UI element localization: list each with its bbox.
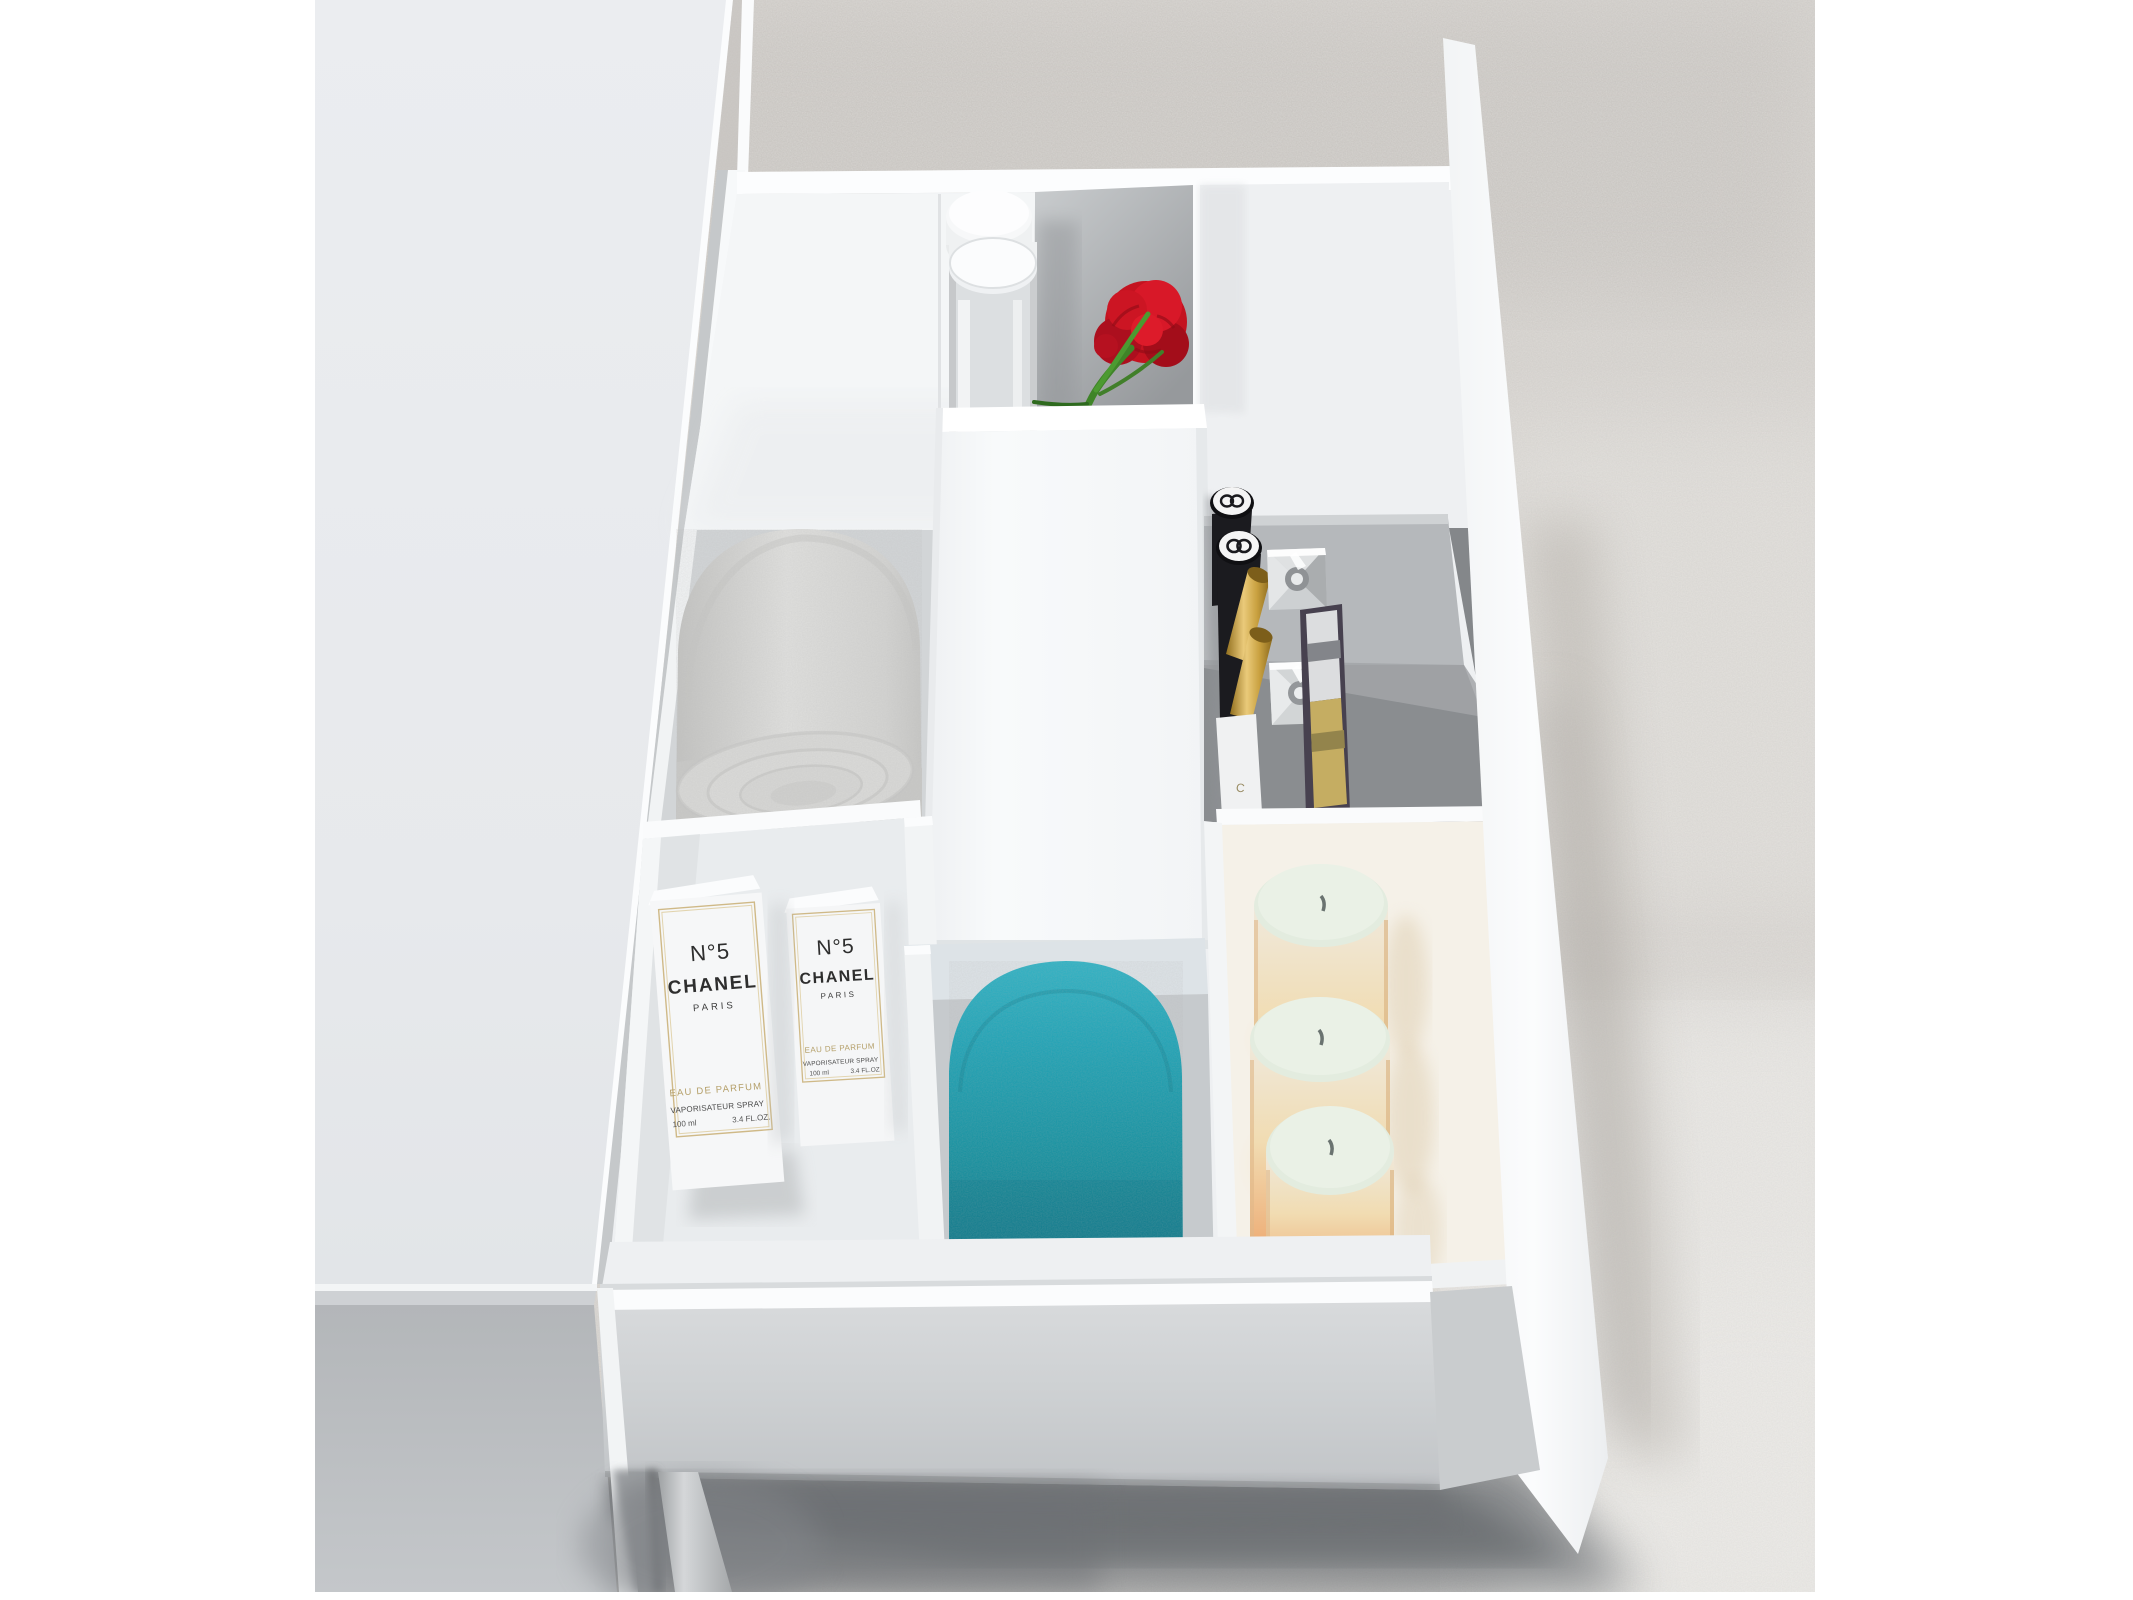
svg-text:C: C (1235, 781, 1245, 796)
svg-text:100 ml: 100 ml (672, 1118, 697, 1129)
svg-text:100 ml: 100 ml (809, 1069, 829, 1077)
svg-text:N°5: N°5 (689, 938, 731, 966)
svg-text:N°5: N°5 (816, 935, 856, 960)
